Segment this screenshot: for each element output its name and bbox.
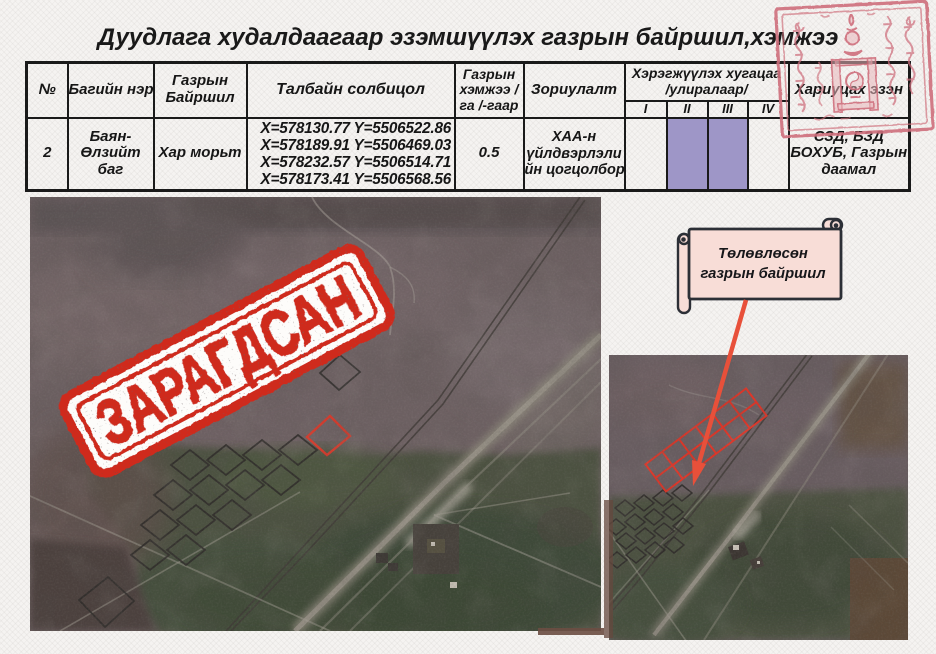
svg-text:газрын байршил: газрын байршил xyxy=(700,266,825,282)
svg-text:Төлөвлөсөн: Төлөвлөсөн xyxy=(718,246,808,262)
